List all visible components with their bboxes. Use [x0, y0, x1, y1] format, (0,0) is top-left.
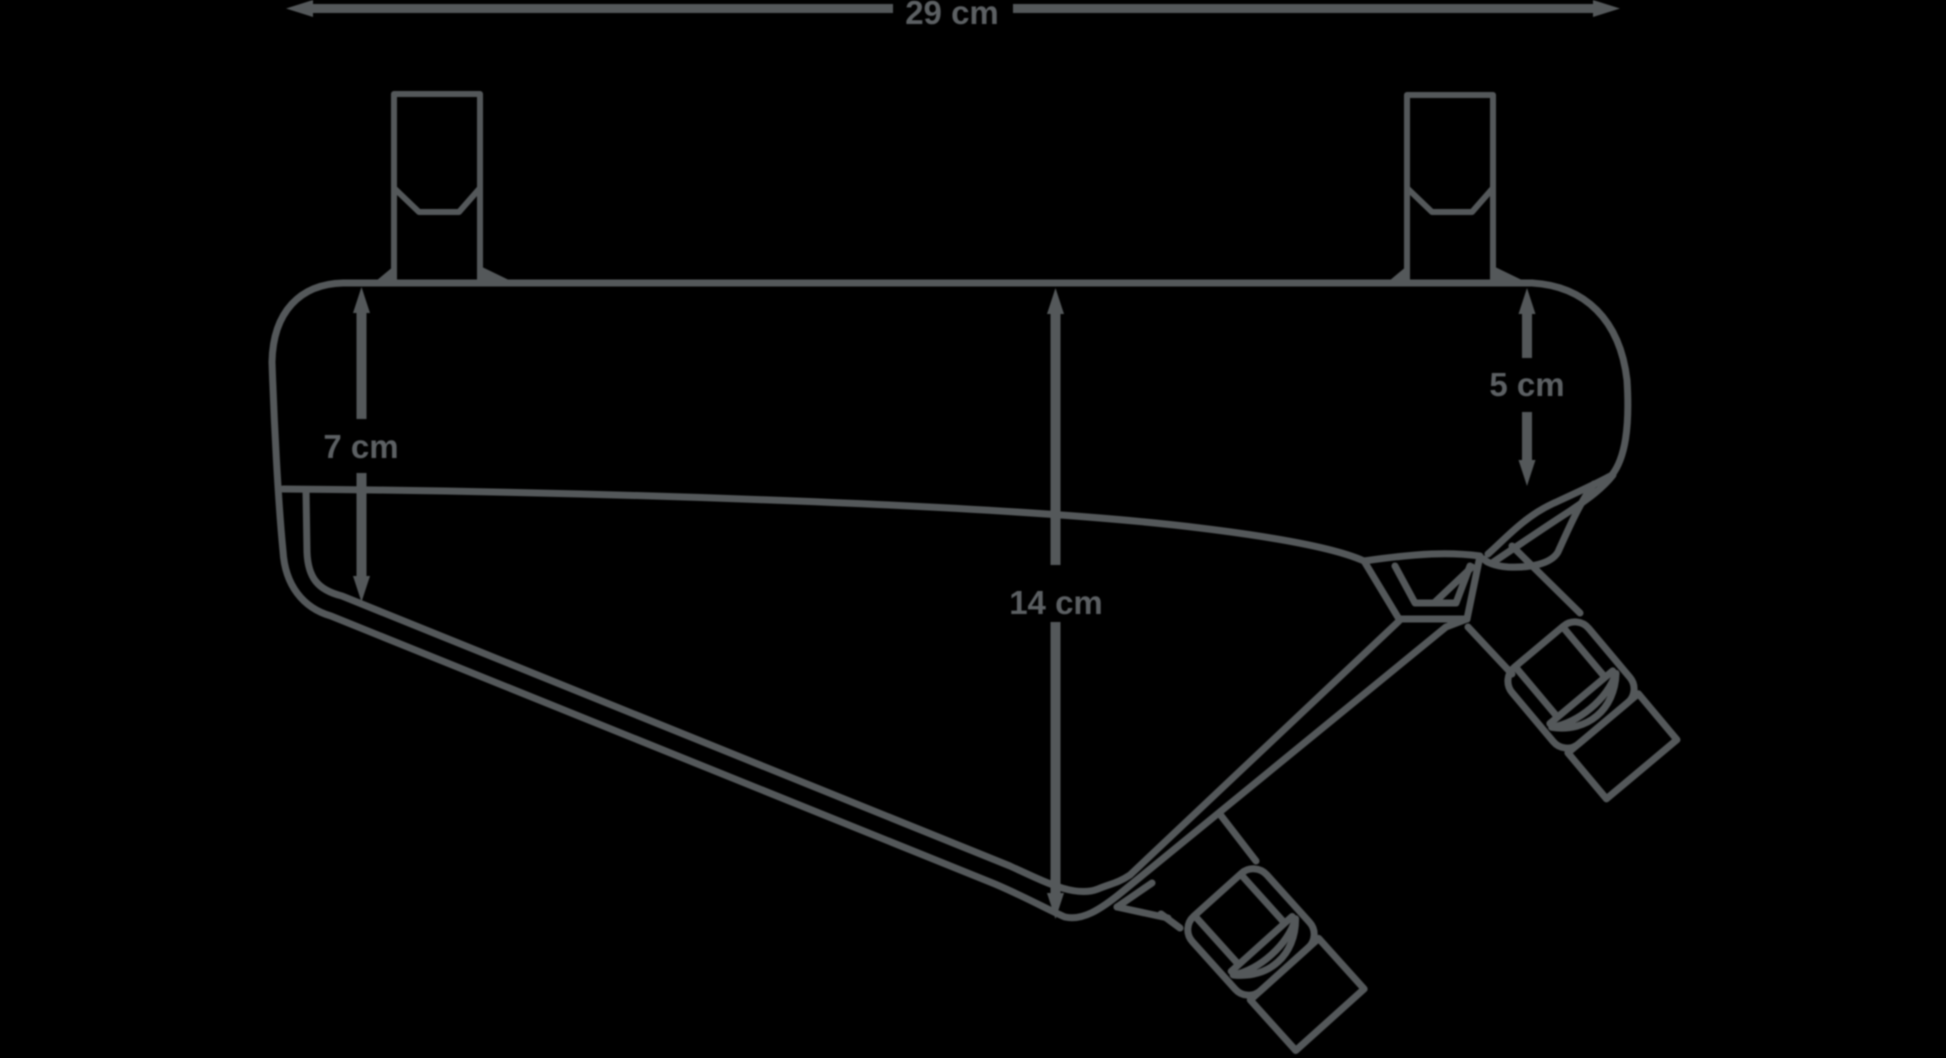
svg-text:29 cm: 29 cm — [905, 0, 999, 31]
svg-text:14 cm: 14 cm — [1009, 584, 1103, 621]
svg-text:5 cm: 5 cm — [1489, 366, 1564, 403]
svg-text:7 cm: 7 cm — [323, 428, 398, 465]
